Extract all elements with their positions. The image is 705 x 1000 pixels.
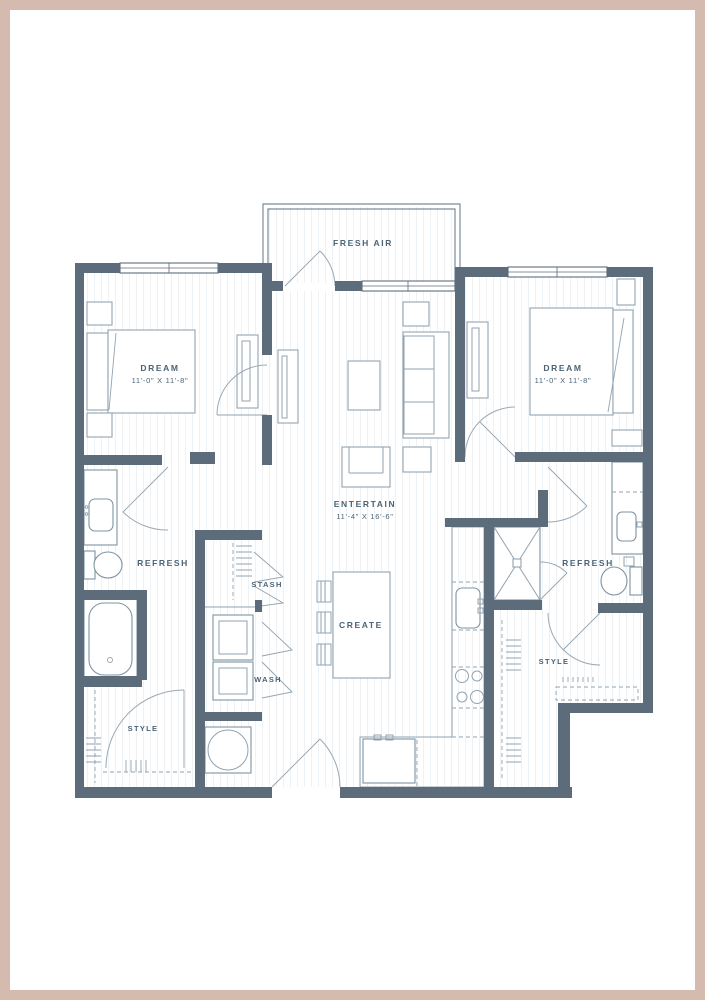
living-label: ENTERTAIN [334,499,396,509]
closet-left-label: STYLE [128,724,159,733]
floor-plan-svg: FRESH AIR DREAM 11'-0" X 11'-8" DREAM 11… [0,0,705,1000]
floor-plan-page: FRESH AIR DREAM 11'-0" X 11'-8" DREAM 11… [0,0,705,1000]
floor-texture [84,207,643,787]
kitchen-label: CREATE [339,620,383,630]
balcony-label: FRESH AIR [333,238,393,248]
bedroom-right-dims: 11'-0" X 11'-8" [535,376,592,385]
shower [494,527,540,600]
bath-left-label: REFRESH [137,558,189,568]
bedroom-right-label: DREAM [543,363,582,373]
closet-right-label: STYLE [539,657,570,666]
wash-label: WASH [254,675,282,684]
living-dims: 11'-4" X 16'-6" [336,512,393,521]
stash-label: STASH [251,580,282,589]
bedroom-left-label: DREAM [140,363,179,373]
bath-right-label: REFRESH [562,558,614,568]
bedroom-left-dims: 11'-0" X 11'-8" [132,376,189,385]
